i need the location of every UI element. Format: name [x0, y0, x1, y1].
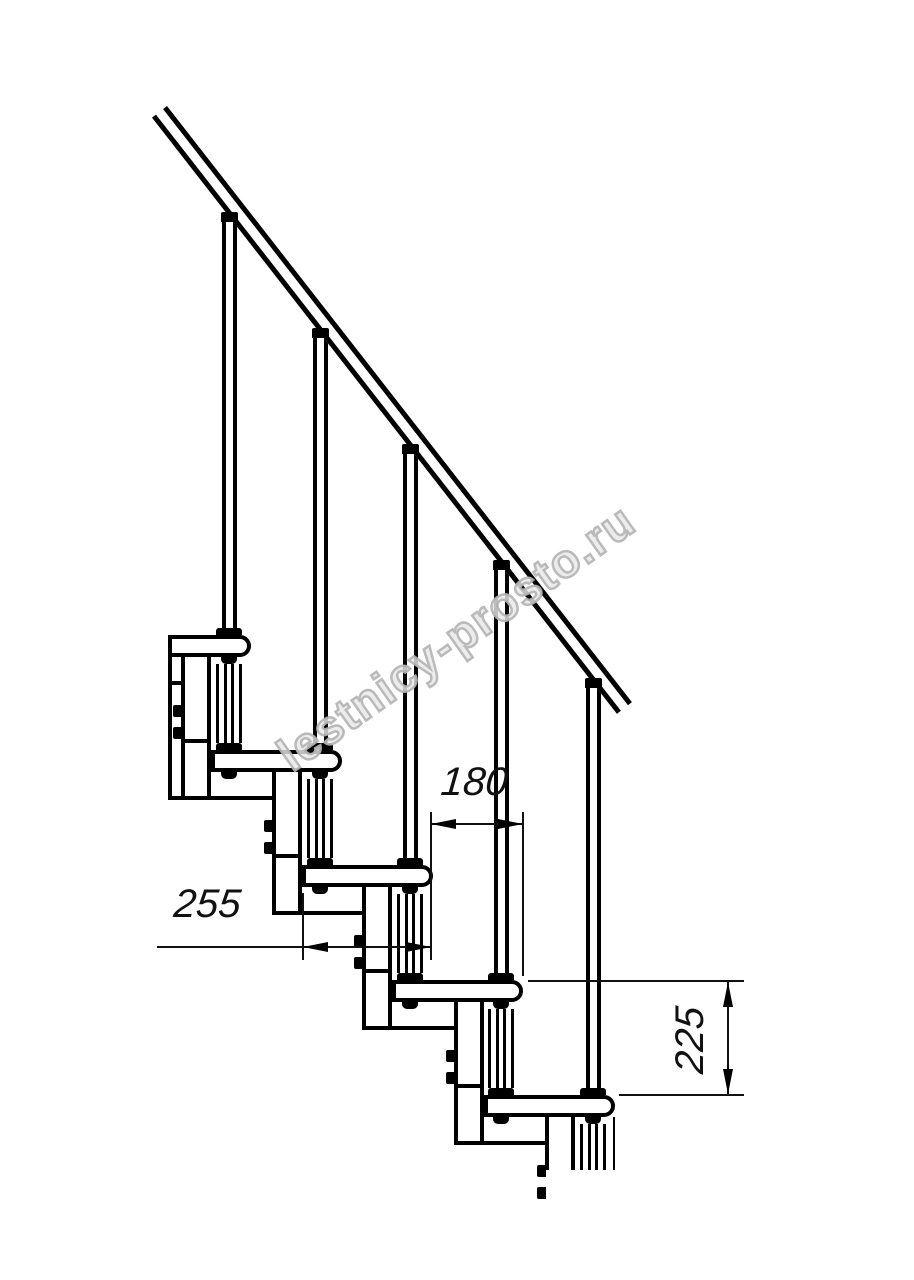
dimension-depth-label: 255	[172, 884, 242, 924]
baluster-rail-cap	[221, 212, 238, 222]
baluster-nut	[493, 1002, 509, 1009]
bolt-tab	[173, 727, 182, 739]
staircase-technical-drawing: 180 255 225 lestnicy-prosto.ru	[0, 0, 914, 1280]
dimension-rise-extension-bottom	[619, 1094, 744, 1096]
dimension-run-extension-right	[522, 812, 524, 976]
arrow-up-icon	[723, 982, 733, 1007]
baluster-nut	[585, 1117, 601, 1124]
baluster-nut	[493, 1117, 509, 1124]
module-bottom-line	[272, 911, 362, 915]
baluster-nut	[221, 772, 237, 779]
support-column	[545, 1115, 575, 1170]
bolt-tab	[446, 1072, 455, 1084]
module-bottom-line	[168, 796, 272, 800]
module-bottom-line	[362, 1026, 454, 1030]
bolt-tab	[264, 820, 273, 832]
baluster-foot	[488, 973, 514, 980]
module-bottom-line	[168, 681, 181, 685]
baluster	[586, 688, 601, 1088]
cut-edge-line	[613, 1117, 615, 1170]
arrow-left-icon	[431, 819, 456, 829]
module-bottom-line	[454, 1141, 545, 1145]
baluster-foot	[580, 1088, 606, 1095]
baluster-foot	[397, 973, 423, 980]
dimension-rise-label: 225	[670, 1005, 710, 1075]
bolt-tab	[446, 1050, 455, 1062]
baluster-nut	[402, 1002, 418, 1009]
support-column	[181, 655, 211, 798]
dimension-depth-line	[157, 946, 431, 948]
riser-rod	[216, 664, 227, 743]
riser-rod	[503, 1009, 514, 1088]
dimension-run-extension-left	[430, 812, 432, 960]
bolt-tab	[537, 1165, 546, 1177]
riser-rod	[412, 894, 423, 973]
arrow-right-icon	[406, 942, 431, 952]
baluster-foot	[216, 743, 242, 750]
riser-rod	[580, 1124, 591, 1170]
baluster	[313, 338, 328, 743]
riser-rod	[397, 894, 408, 973]
dimension-depth-extension-left	[302, 893, 304, 960]
arrow-down-icon	[723, 1069, 733, 1094]
baluster-nut	[402, 887, 418, 894]
stair-tread	[484, 1095, 615, 1117]
bolt-tab	[354, 957, 363, 969]
riser-rod	[307, 779, 318, 858]
stair-tread	[168, 635, 251, 657]
baluster	[222, 222, 237, 628]
column-divider-line	[181, 739, 211, 743]
baluster-foot	[397, 858, 423, 865]
stair-tread	[392, 980, 523, 1002]
baluster-nut	[312, 772, 328, 779]
riser-rod	[595, 1124, 606, 1170]
support-column	[272, 770, 302, 913]
bolt-tab	[537, 1187, 546, 1199]
riser-rod	[488, 1009, 499, 1088]
column-divider-line	[362, 969, 392, 973]
baluster-foot	[307, 858, 333, 865]
baluster-rail-cap	[312, 328, 329, 338]
support-column	[362, 885, 392, 1028]
arrow-right-icon	[498, 819, 523, 829]
stair-tread	[302, 865, 433, 887]
baluster-nut	[221, 657, 237, 664]
dimension-run-label: 180	[439, 762, 509, 802]
baluster-rail-cap	[402, 444, 419, 454]
cut-edge-line	[168, 635, 172, 798]
riser-rod	[322, 779, 333, 858]
dimension-rise-extension-top	[528, 980, 744, 982]
baluster-foot	[488, 1088, 514, 1095]
support-column	[454, 1000, 484, 1143]
baluster-foot	[216, 628, 242, 635]
baluster-rail-cap	[585, 678, 602, 688]
column-divider-line	[272, 854, 302, 858]
riser-rod	[231, 664, 242, 743]
arrow-left-icon	[303, 942, 328, 952]
baluster-nut	[312, 887, 328, 894]
column-divider-line	[454, 1084, 484, 1088]
bolt-tab	[173, 705, 182, 717]
bolt-tab	[264, 842, 273, 854]
